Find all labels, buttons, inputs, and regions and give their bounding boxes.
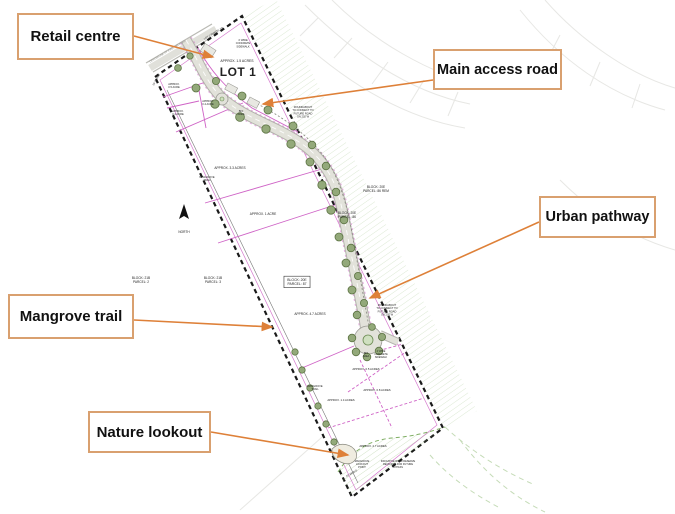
tree-icon [264, 106, 272, 114]
tree-icon [289, 122, 297, 130]
tree-icon [187, 53, 193, 59]
tree-icon [322, 162, 330, 170]
plan-label: APPROX. 0.5 ACRES [352, 367, 379, 371]
tree-icon [331, 439, 337, 445]
plan-label: APPROX. 4.7 ACRES [294, 312, 325, 316]
callout-mangrove-trail: Mangrove trail [8, 294, 134, 339]
plan-label: APPROX. 0.8 ACRES [363, 388, 390, 392]
tree-icon [369, 324, 376, 331]
callout-mangrove-trail-label: Mangrove trail [20, 308, 123, 325]
plan-label: BLOCK: 20EPARCEL: 86 REM [363, 185, 389, 193]
tree-icon [332, 188, 340, 196]
plan-label: APPROX. 1.5 ACRES [220, 59, 254, 63]
callout-urban-pathway-label: Urban pathway [546, 209, 650, 225]
existing-contour-lines [430, 427, 545, 512]
tree-icon [347, 244, 355, 252]
annotated-site-plan: CENTERLINE OF EXISTING ROADLOT 2 PARCEL … [0, 0, 675, 514]
tree-icon [262, 125, 270, 133]
plan-label: BLOCK: 20EPARCEL: 87 [287, 278, 307, 286]
tree-icon [354, 272, 361, 279]
north-arrow-icon [179, 204, 189, 219]
plan-label: APPROX. 1.4 ACRES [327, 398, 354, 402]
plan-label: APPROX. 2.7 ACRES [359, 444, 386, 448]
callout-main-access-road-label: Main access road [437, 62, 558, 78]
tree-icon [360, 299, 367, 306]
plan-label: LOT 1 [220, 65, 257, 79]
tree-icon [175, 65, 182, 72]
callout-nature-lookout: Nature lookout [88, 411, 211, 453]
tree-icon [327, 206, 335, 214]
plan-label: NORTH [178, 230, 190, 234]
plan-label: APPROX. 3.3 ACRES [214, 166, 245, 170]
tree-icon [292, 349, 298, 355]
tree-icon [299, 367, 305, 373]
tree-icon [335, 233, 343, 241]
callout-main-access-road: Main access road [433, 49, 562, 90]
tree-icon [352, 348, 360, 356]
tree-icon [315, 403, 321, 409]
tree-icon [212, 77, 219, 84]
plan-label: APPROX.0.4 ACRE [172, 109, 184, 116]
tree-icon [308, 141, 316, 149]
tree-icon [348, 334, 356, 342]
callout-retail-centre-label: Retail centre [30, 28, 120, 45]
plan-label: BLOCK: 20EPARCEL: 86 [338, 211, 356, 219]
tree-icon [342, 259, 350, 267]
plan-label: BLOCK: 21BPARCEL: 3 [204, 276, 222, 284]
tree-icon [353, 311, 361, 319]
callout-nature-lookout-label: Nature lookout [97, 424, 203, 441]
callout-retail-centre: Retail centre [17, 13, 134, 60]
plan-label: APPROX. 1 ACRE [250, 212, 276, 216]
tree-icon [348, 286, 356, 294]
tree-icon [318, 181, 326, 189]
mangrove-trail-arrow [134, 320, 272, 327]
tree-icon [192, 84, 200, 92]
plan-label: APPROX.0.4 ACRE [202, 99, 214, 106]
callout-urban-pathway: Urban pathway [539, 196, 656, 238]
tree-icon [323, 421, 329, 427]
tree-icon [378, 333, 385, 340]
tree-icon [306, 158, 314, 166]
plan-label: BLOCK: 21BPARCEL: 2 [132, 276, 150, 284]
plan-label: APPROX.0.5 ACRE [168, 82, 180, 89]
tree-icon [238, 92, 246, 100]
tree-icon [287, 140, 295, 148]
